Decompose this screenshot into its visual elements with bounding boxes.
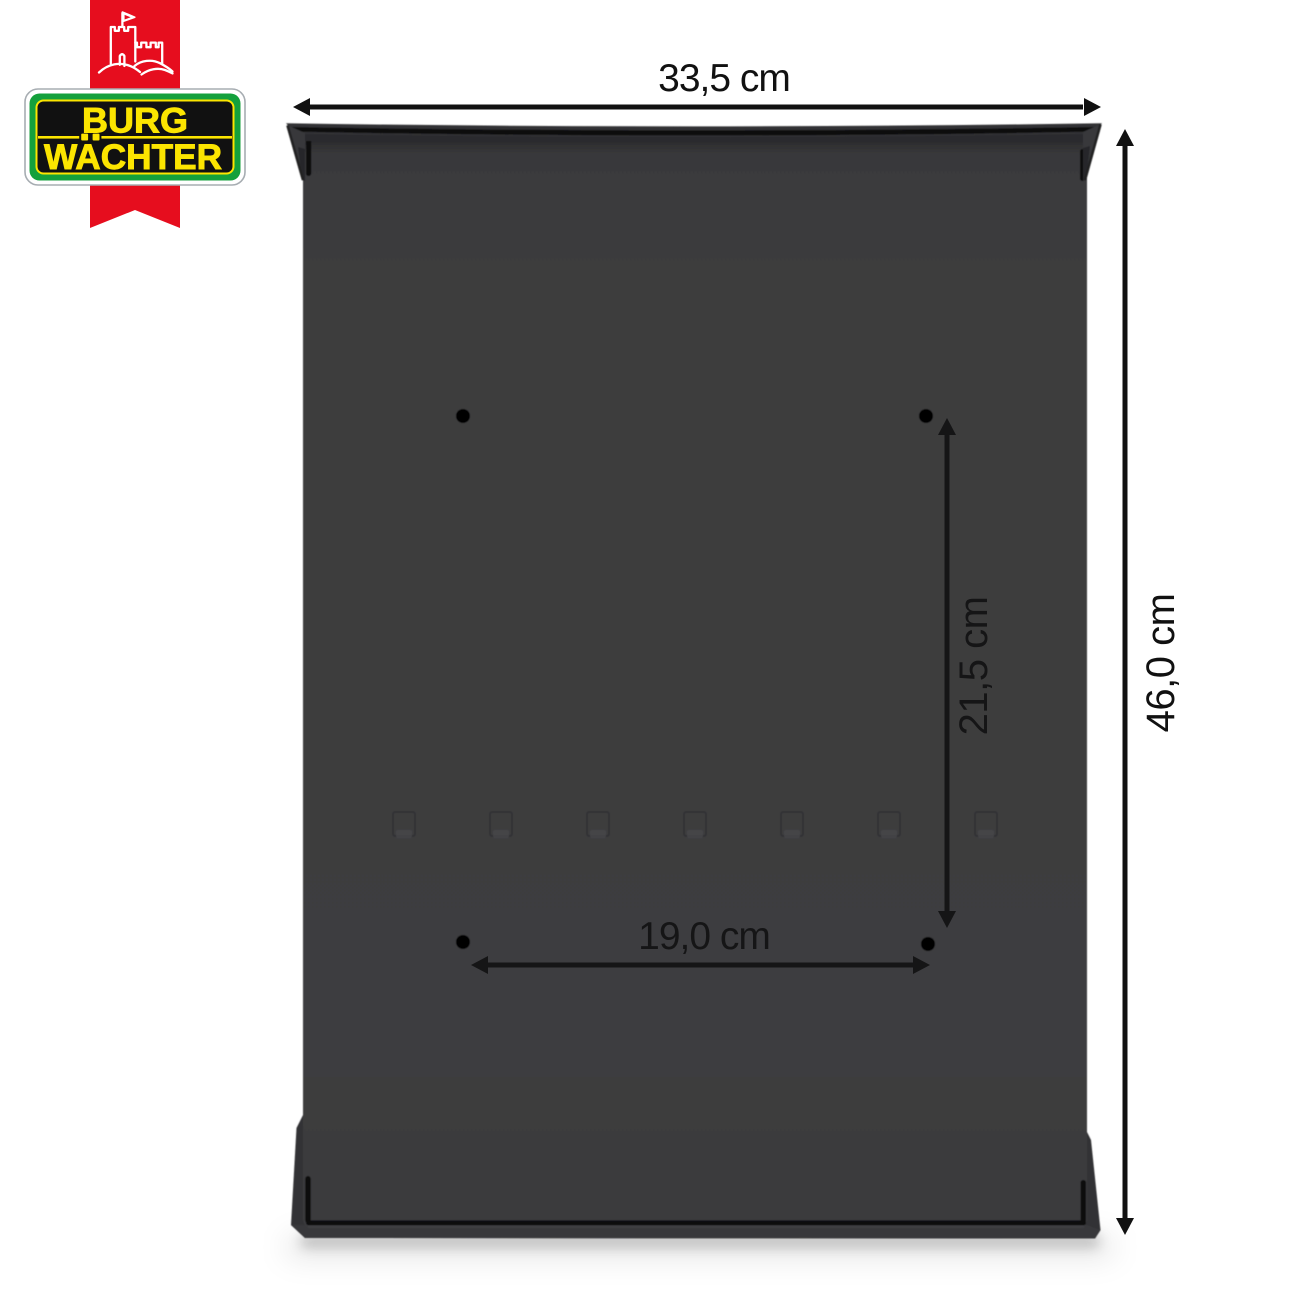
svg-text:33,5 cm: 33,5 cm xyxy=(658,57,790,100)
svg-text:21,5 cm: 21,5 cm xyxy=(952,597,996,736)
svg-text:46,0 cm: 46,0 cm xyxy=(1139,594,1183,733)
svg-text:WACHTER: WACHTER xyxy=(44,138,222,177)
svg-text:BURG: BURG xyxy=(82,102,188,141)
svg-text:19,0 cm: 19,0 cm xyxy=(638,915,770,958)
